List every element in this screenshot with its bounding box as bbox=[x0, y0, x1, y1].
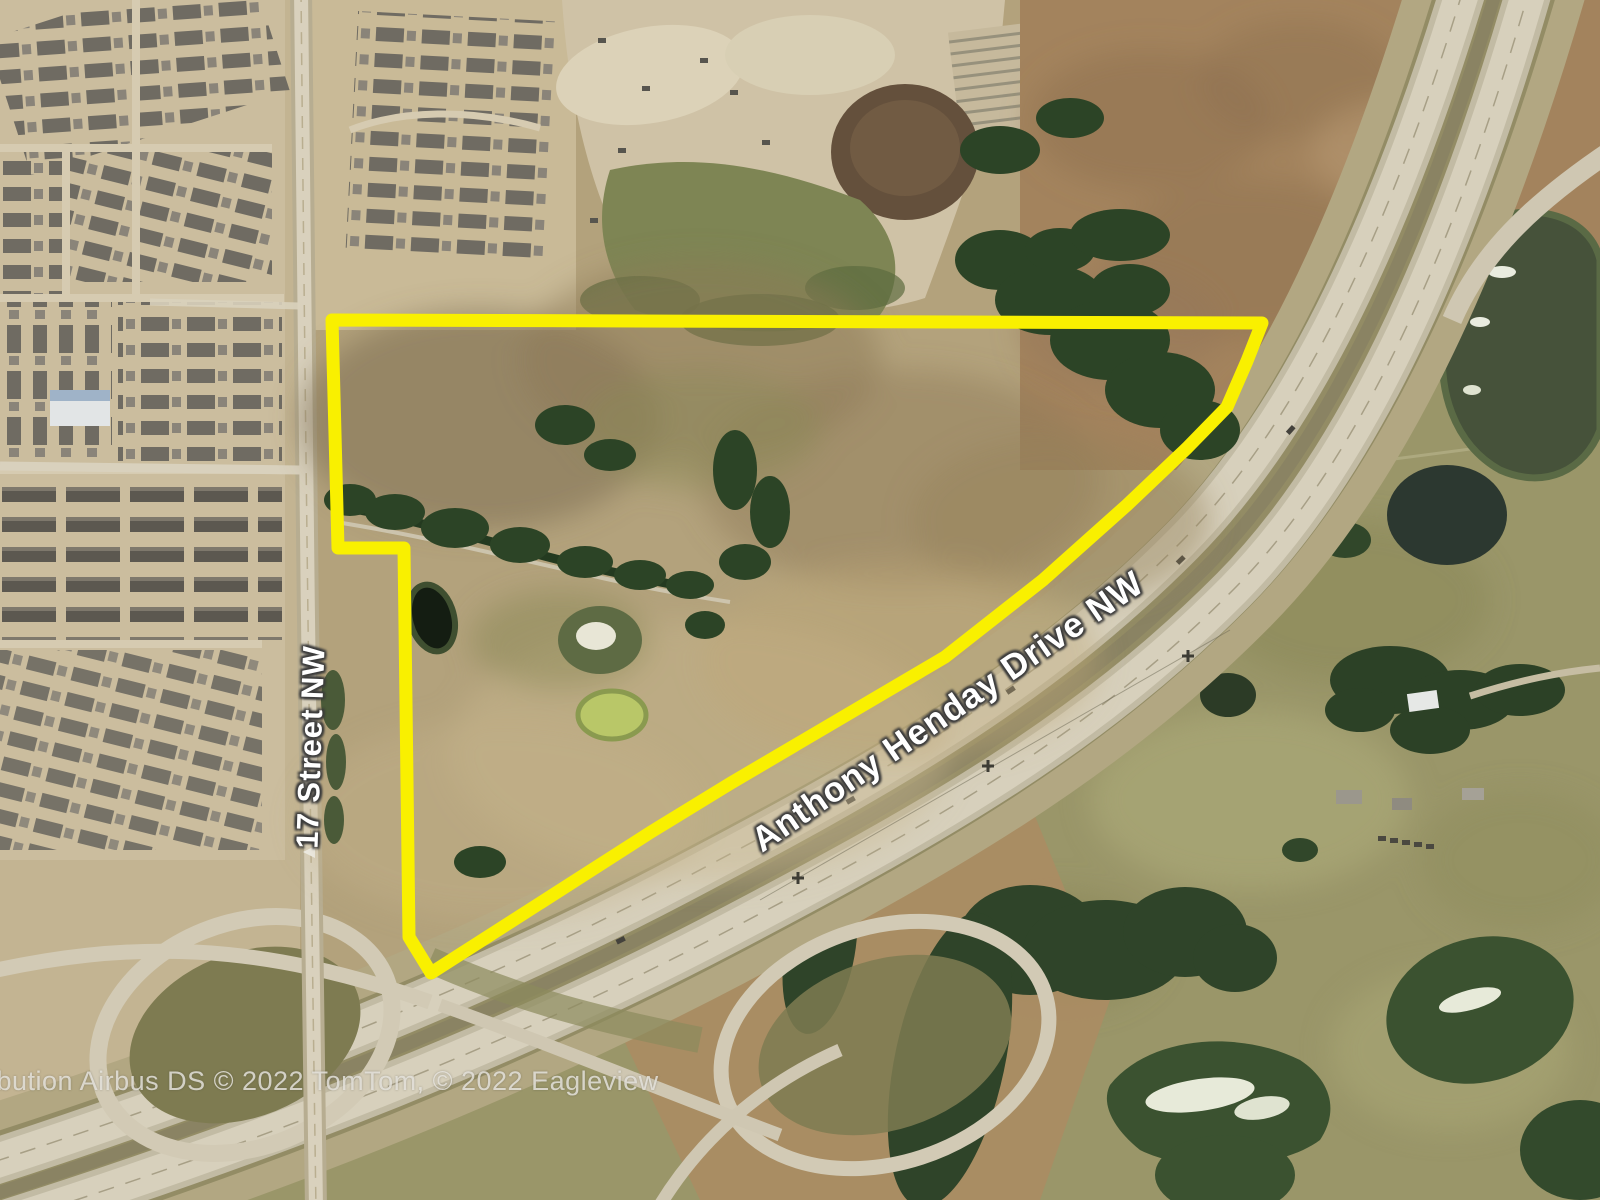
satellite-imagery bbox=[0, 0, 1600, 1200]
imagery-attribution: ibution Airbus DS © 2022 TomTom, © 2022 … bbox=[0, 1066, 659, 1097]
aerial-map: 17 Street NW Anthony Henday Drive NW ibu… bbox=[0, 0, 1600, 1200]
